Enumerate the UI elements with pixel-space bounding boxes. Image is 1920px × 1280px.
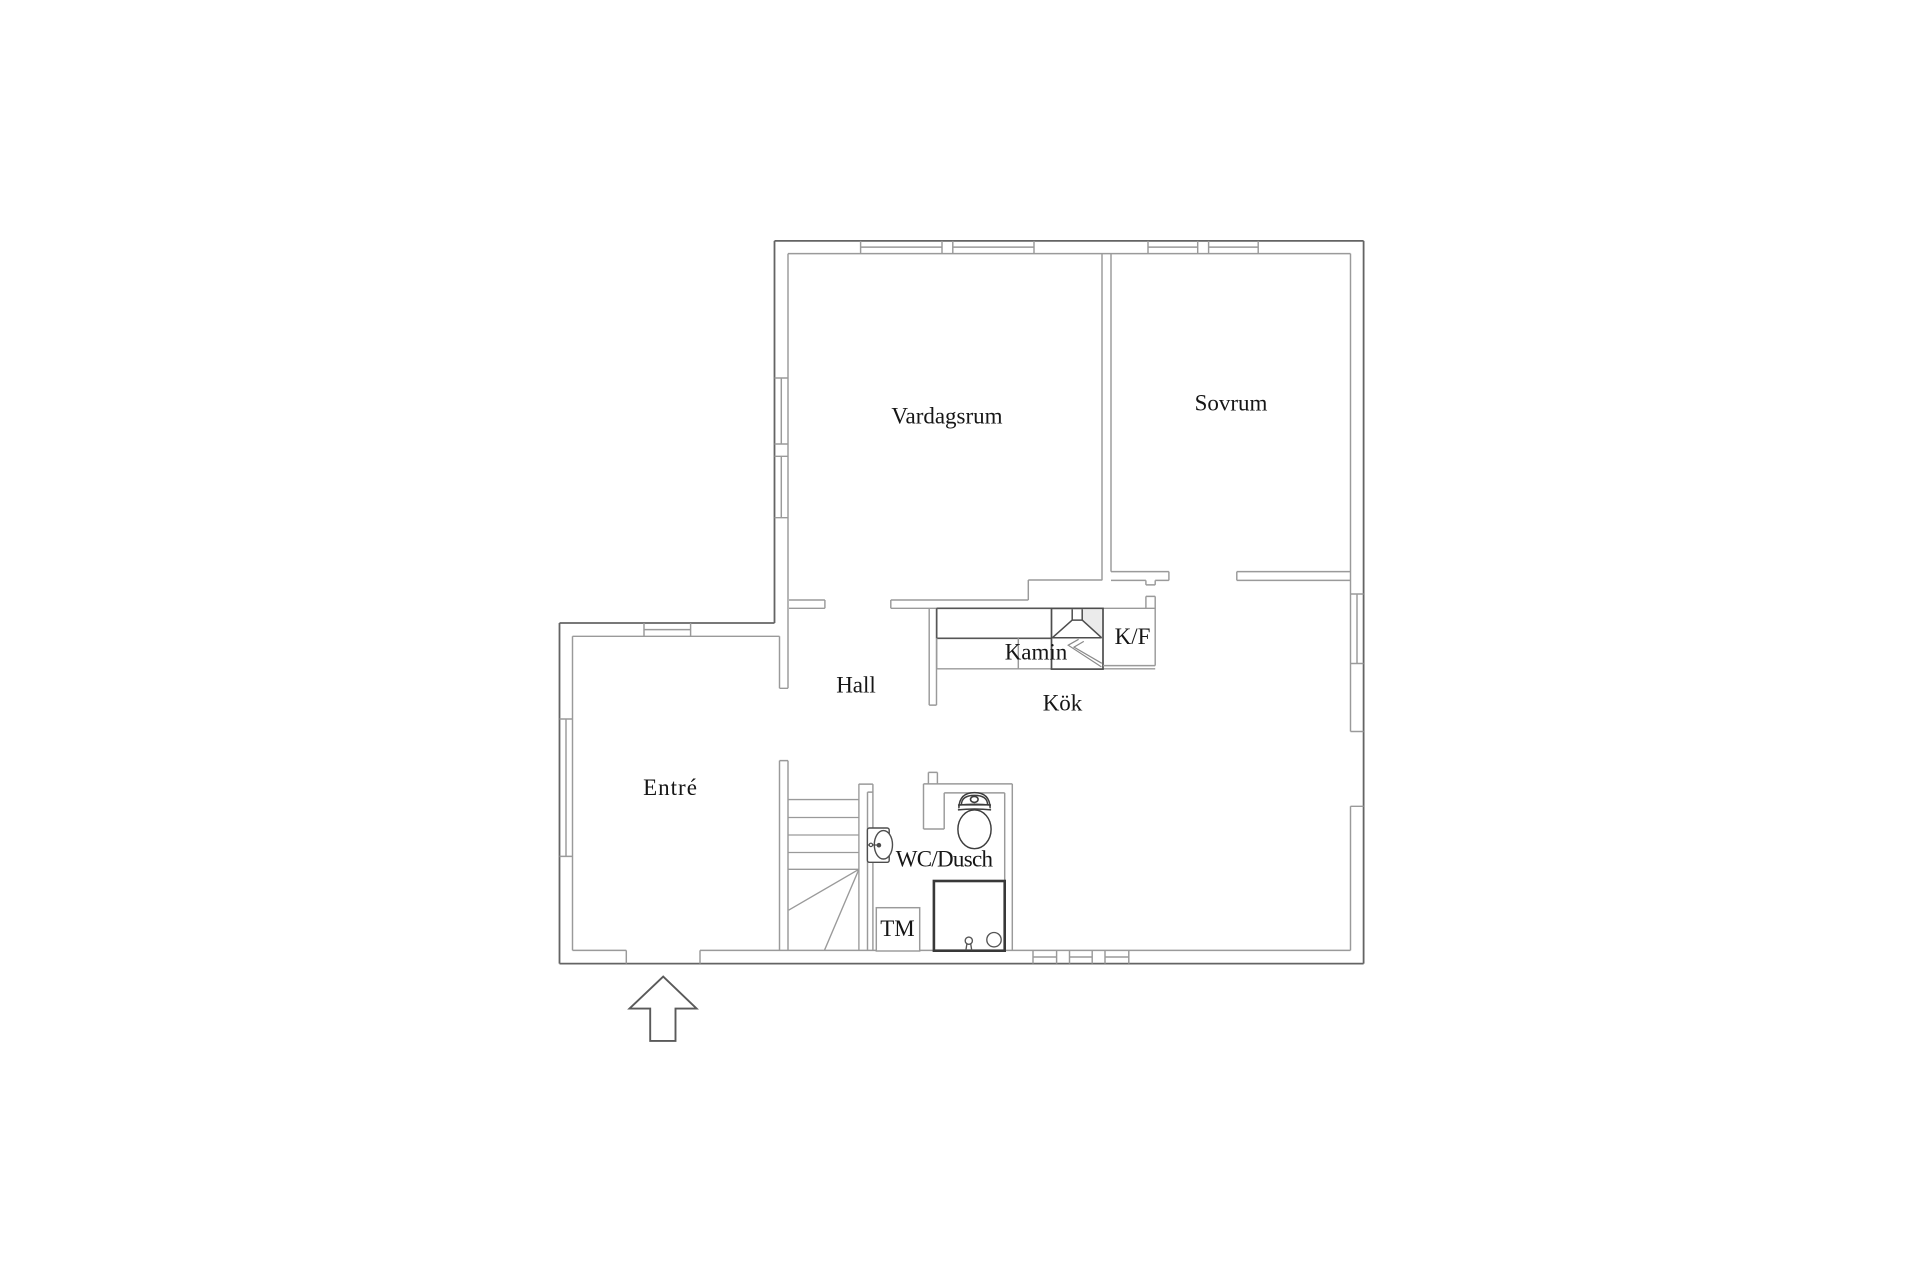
- svg-text:Vardagsrum: Vardagsrum: [891, 404, 1002, 429]
- svg-text:K/F: K/F: [1115, 624, 1151, 649]
- svg-text:Entré: Entré: [643, 775, 698, 800]
- svg-text:WC/Dusch: WC/Dusch: [896, 847, 994, 872]
- svg-text:Kamin: Kamin: [1005, 640, 1068, 665]
- svg-text:Sovrum: Sovrum: [1195, 391, 1268, 416]
- svg-text:TM: TM: [880, 916, 915, 941]
- svg-text:Hall: Hall: [836, 673, 876, 698]
- svg-text:Kök: Kök: [1043, 691, 1083, 716]
